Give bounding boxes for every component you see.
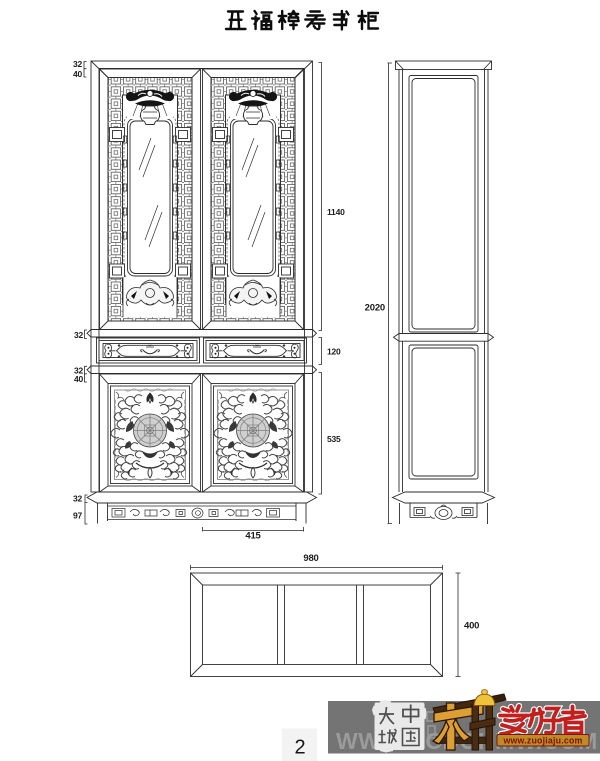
svg-text:www.zuojiaju.com: www.zuojiaju.com xyxy=(502,736,582,746)
svg-text:1140: 1140 xyxy=(327,207,345,217)
svg-text:97: 97 xyxy=(73,511,83,521)
svg-text:535: 535 xyxy=(327,434,341,444)
svg-text:120: 120 xyxy=(327,347,341,357)
svg-text:40: 40 xyxy=(73,69,83,79)
svg-text:980: 980 xyxy=(303,553,318,564)
svg-text:40: 40 xyxy=(74,374,84,384)
svg-text:32: 32 xyxy=(73,494,83,504)
svg-text:2: 2 xyxy=(294,737,305,759)
svg-text:32: 32 xyxy=(73,59,83,69)
svg-text:2020: 2020 xyxy=(365,303,385,314)
svg-text:400: 400 xyxy=(464,621,479,632)
svg-text:32: 32 xyxy=(74,330,84,340)
svg-text:415: 415 xyxy=(245,531,261,542)
